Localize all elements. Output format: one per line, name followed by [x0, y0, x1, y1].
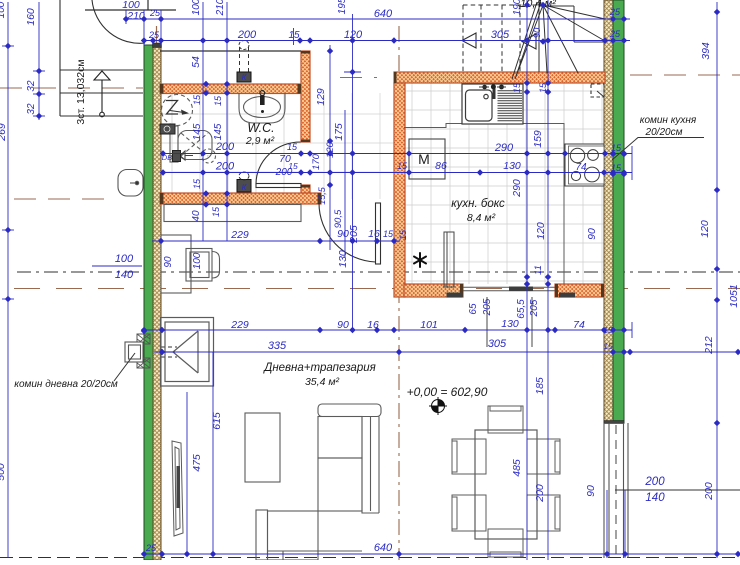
svg-text:65: 65 — [468, 303, 479, 315]
svg-text:210: 210 — [126, 10, 145, 22]
svg-text:25: 25 — [149, 8, 161, 18]
svg-text:200: 200 — [215, 161, 235, 173]
svg-text:15: 15 — [213, 95, 223, 106]
svg-text:Дневна+трапезария: Дневна+трапезария — [262, 362, 376, 374]
svg-text:W.C.: W.C. — [247, 121, 274, 135]
svg-text:120: 120 — [344, 29, 363, 41]
svg-text:25: 25 — [609, 7, 621, 17]
svg-text:15: 15 — [211, 206, 221, 217]
svg-text:130: 130 — [337, 250, 349, 268]
svg-text:16: 16 — [368, 228, 380, 240]
svg-text:32: 32 — [26, 80, 37, 92]
svg-text:15: 15 — [398, 229, 408, 240]
svg-text:290: 290 — [494, 142, 514, 154]
svg-text:40: 40 — [191, 210, 202, 222]
svg-text:129: 129 — [315, 88, 327, 106]
svg-text:145: 145 — [192, 123, 203, 140]
svg-text:175: 175 — [333, 123, 345, 141]
svg-text:15: 15 — [512, 82, 522, 93]
svg-text:8,4 м²: 8,4 м² — [467, 212, 496, 224]
svg-text:кухн. бокс: кухн. бокс — [451, 198, 505, 210]
svg-text:90: 90 — [585, 485, 597, 497]
svg-text:305: 305 — [488, 338, 507, 350]
svg-text:2,9 м²: 2,9 м² — [245, 135, 275, 147]
svg-text:25: 25 — [145, 543, 157, 553]
svg-text:140: 140 — [645, 492, 665, 504]
svg-text:500: 500 — [0, 463, 7, 481]
svg-text:15: 15 — [288, 30, 300, 41]
svg-text:170: 170 — [311, 153, 322, 170]
svg-text:100: 100 — [192, 252, 203, 269]
svg-text:185: 185 — [534, 377, 546, 395]
svg-text:212: 212 — [703, 336, 715, 355]
svg-text:159: 159 — [532, 130, 544, 148]
svg-text:15: 15 — [383, 229, 394, 239]
svg-text:130: 130 — [501, 318, 519, 330]
svg-text:205: 205 — [348, 225, 360, 244]
svg-text:269: 269 — [0, 123, 8, 142]
svg-text:190: 190 — [512, 0, 523, 15]
svg-text:90: 90 — [586, 228, 598, 240]
svg-text:74: 74 — [575, 162, 587, 173]
svg-text:16: 16 — [367, 319, 379, 331]
svg-text:90: 90 — [532, 27, 543, 38]
svg-text:54: 54 — [190, 56, 202, 68]
svg-text:615: 615 — [211, 412, 223, 430]
svg-text:100: 100 — [115, 253, 134, 265]
svg-text:20/20см: 20/20см — [645, 127, 683, 138]
svg-text:140: 140 — [115, 269, 134, 281]
svg-text:15: 15 — [538, 82, 548, 93]
svg-text:15: 15 — [603, 341, 613, 351]
svg-text:90: 90 — [337, 319, 349, 331]
svg-text:290: 290 — [511, 179, 523, 198]
svg-text:86: 86 — [435, 160, 447, 172]
svg-text:комин дневна 20/20см: комин дневна 20/20см — [14, 379, 118, 390]
svg-text:200: 200 — [534, 484, 546, 503]
svg-text:15,5: 15,5 — [317, 186, 327, 205]
svg-text:15: 15 — [603, 325, 613, 335]
svg-text:11: 11 — [533, 265, 544, 275]
svg-text:32: 32 — [26, 103, 37, 115]
svg-text:35,4 м²: 35,4 м² — [305, 376, 340, 388]
svg-text:640: 640 — [374, 8, 393, 20]
svg-text:394: 394 — [700, 42, 712, 60]
svg-text:25: 25 — [609, 29, 621, 39]
svg-text:101: 101 — [420, 319, 438, 331]
svg-text:90: 90 — [337, 228, 349, 240]
svg-text:15: 15 — [611, 143, 622, 153]
svg-text:100: 100 — [0, 1, 7, 18]
svg-text:200: 200 — [237, 29, 257, 41]
svg-text:335: 335 — [268, 340, 287, 352]
svg-text:120: 120 — [325, 141, 336, 158]
svg-text:210: 210 — [215, 0, 226, 16]
svg-text:200: 200 — [215, 141, 235, 153]
svg-text:90: 90 — [163, 256, 174, 268]
svg-text:200: 200 — [644, 476, 665, 488]
svg-text:130: 130 — [503, 160, 521, 172]
svg-text:120: 120 — [535, 222, 547, 240]
svg-text:90,5: 90,5 — [333, 209, 344, 228]
svg-text:485: 485 — [511, 459, 523, 477]
svg-text:15: 15 — [192, 94, 202, 105]
svg-text:15: 15 — [397, 161, 408, 171]
svg-text:475: 475 — [191, 454, 203, 472]
svg-text:120: 120 — [699, 220, 711, 238]
svg-text:15: 15 — [611, 163, 622, 173]
svg-text:205: 205 — [482, 298, 493, 316]
svg-text:3ст. 13,032см: 3ст. 13,032см — [75, 59, 87, 124]
svg-text:+0,00 = 602,90: +0,00 = 602,90 — [407, 385, 488, 399]
svg-text:100: 100 — [191, 0, 202, 15]
svg-text:305: 305 — [491, 29, 510, 41]
svg-text:25: 25 — [148, 30, 160, 40]
svg-text:229: 229 — [230, 319, 249, 331]
svg-text:229: 229 — [230, 229, 249, 241]
svg-text:15: 15 — [287, 142, 298, 152]
svg-text:160: 160 — [25, 8, 37, 26]
svg-text:145: 145 — [213, 123, 224, 140]
svg-text:640: 640 — [374, 542, 393, 554]
svg-text:205: 205 — [529, 299, 540, 317]
svg-text:комин кухня: комин кухня — [640, 115, 697, 126]
svg-text:15: 15 — [192, 178, 202, 189]
svg-text:195: 195 — [337, 0, 348, 14]
svg-text:74: 74 — [573, 319, 585, 331]
svg-text:65,5: 65,5 — [516, 299, 527, 319]
svg-text:15: 15 — [288, 161, 298, 171]
svg-text:200: 200 — [703, 482, 715, 501]
svg-text:1051: 1051 — [728, 284, 740, 307]
